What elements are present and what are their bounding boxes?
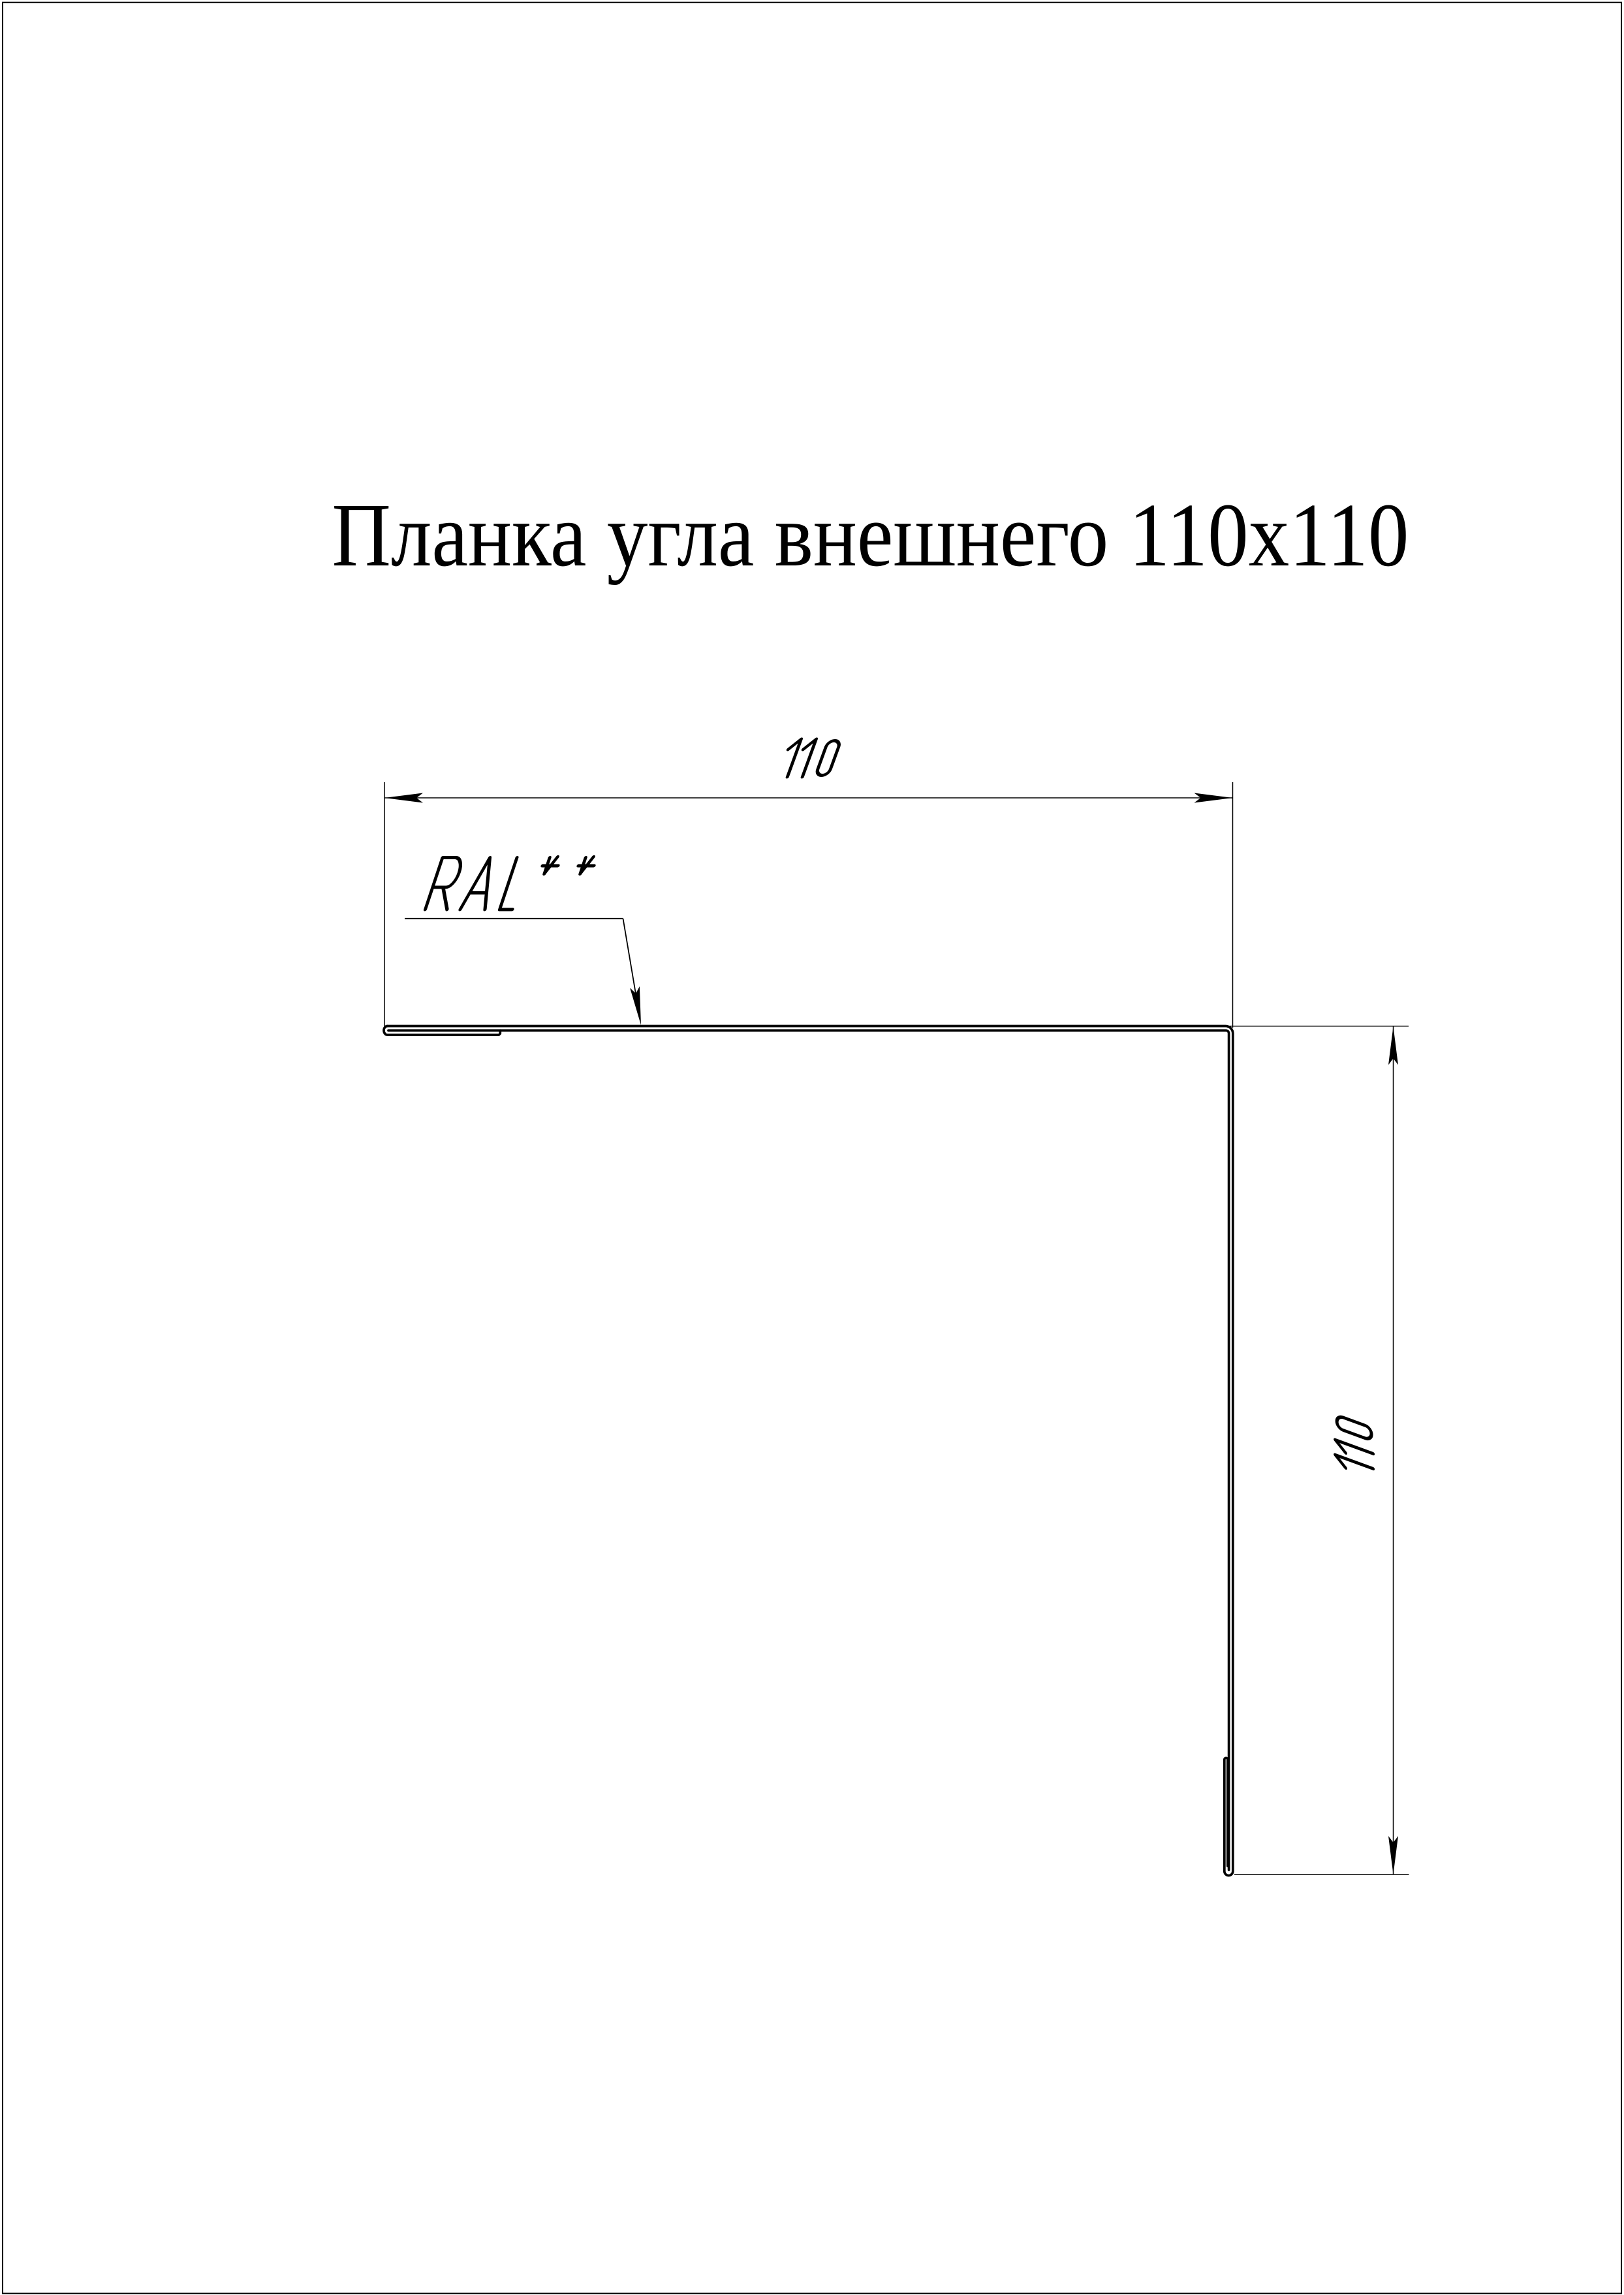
svg-text:Планка угла внешнего 110х110: Планка угла внешнего 110х110 bbox=[332, 485, 1409, 586]
